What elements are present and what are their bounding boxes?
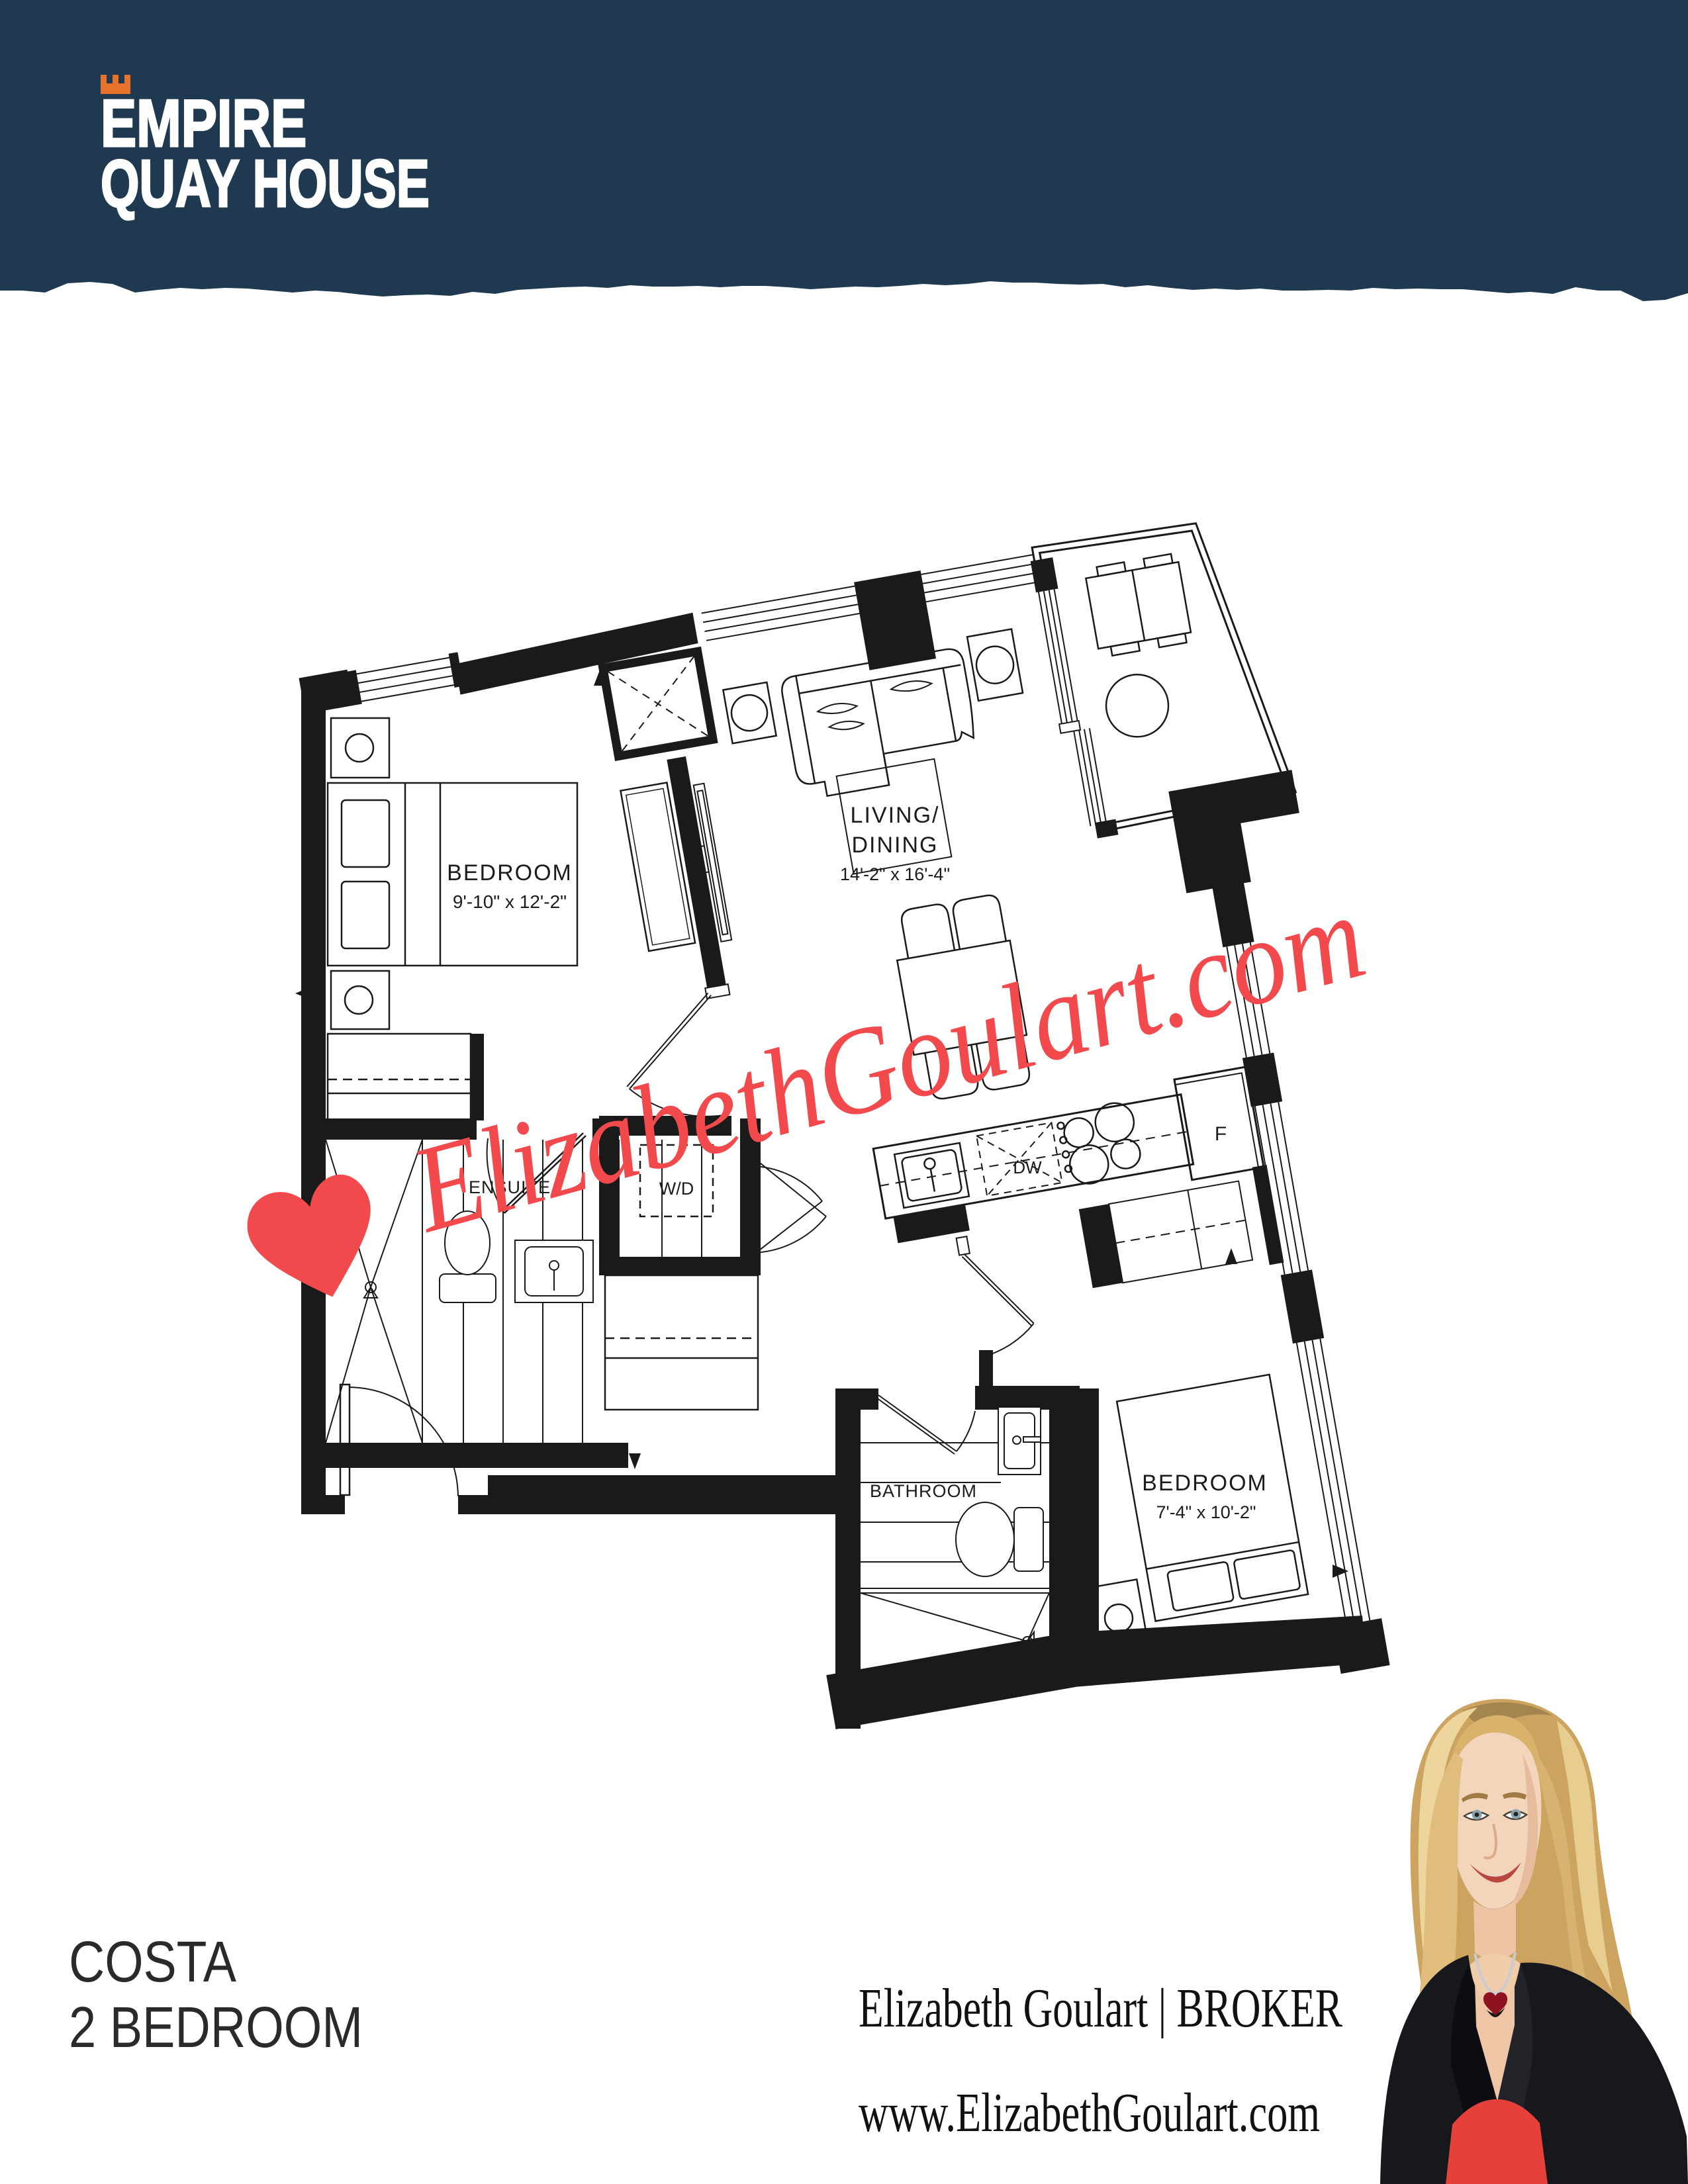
svg-text:Elizabeth Goulart | BROKER: Elizabeth Goulart | BROKER [859,1978,1342,2039]
svg-text:2 BEDROOM: 2 BEDROOM [69,1995,363,2060]
svg-text:14'-2" x 16'-4": 14'-2" x 16'-4" [840,864,950,884]
svg-text:BEDROOM: BEDROOM [447,860,573,886]
svg-text:DW: DW [1013,1158,1042,1177]
svg-text:COSTA: COSTA [69,1930,236,1994]
svg-text:F: F [1215,1123,1227,1145]
svg-text:7'-4" x 10'-2": 7'-4" x 10'-2" [1156,1502,1256,1522]
svg-text:9'-10" x 12'-2": 9'-10" x 12'-2" [453,891,567,912]
svg-text:BEDROOM: BEDROOM [1142,1471,1268,1496]
svg-text:www.ElizabethGoulart.com: www.ElizabethGoulart.com [859,2082,1320,2144]
svg-text:DINING: DINING [852,833,939,858]
svg-text:QUAY HOUSE: QUAY HOUSE [101,147,430,222]
svg-text:BATHROOM: BATHROOM [870,1481,977,1501]
svg-text:LIVING/: LIVING/ [851,803,940,828]
